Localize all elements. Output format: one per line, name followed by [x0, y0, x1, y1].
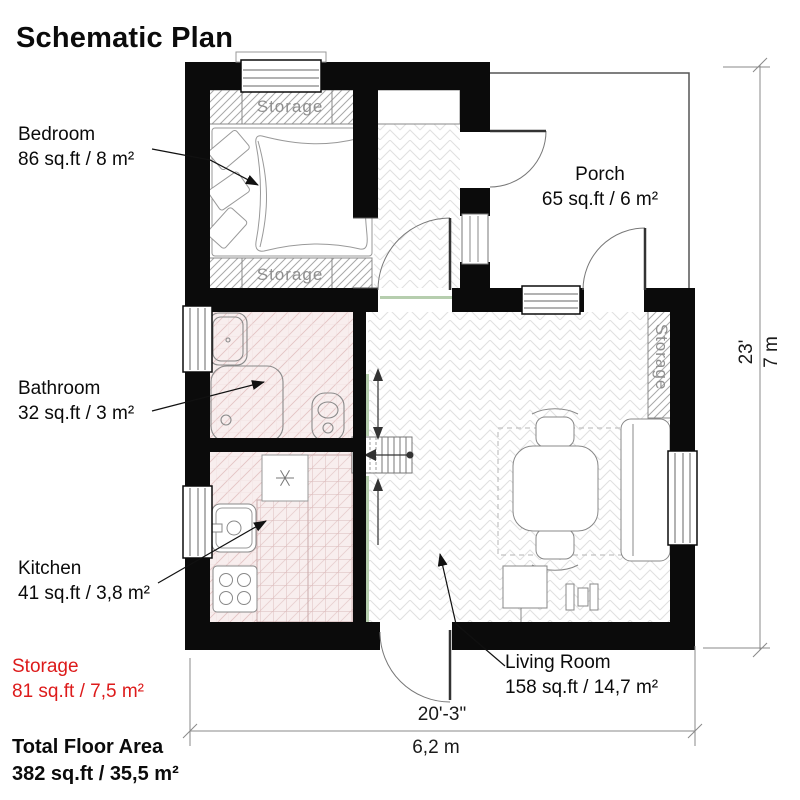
porch-name: Porch [542, 162, 658, 187]
sofa [621, 419, 670, 561]
bathroom-area: 32 sq.ft / 3 m² [18, 401, 134, 426]
living-room-name: Living Room [505, 650, 658, 675]
dining-table [513, 446, 598, 531]
kitchen-name: Kitchen [18, 556, 150, 581]
bed-blanket [256, 136, 367, 251]
entry-closet [372, 90, 460, 124]
dim-height-ft: 23' [736, 340, 758, 365]
total-value: 382 sq.ft / 35,5 m² [12, 761, 179, 788]
wall-hall-lower [353, 290, 366, 622]
bedroom-furniture [206, 128, 372, 256]
bedroom-area: 86 sq.ft / 8 m² [18, 147, 134, 172]
porch-label: Porch 65 sq.ft / 6 m² [542, 162, 658, 212]
chair [536, 417, 574, 447]
storage-label: Storage 81 sq.ft / 7,5 m² [12, 654, 144, 704]
storage-band-top-text: Storage [257, 97, 324, 117]
chair [536, 529, 574, 559]
tv-stand [503, 566, 547, 608]
wall-hall-porch [460, 90, 490, 132]
bathroom-name: Bathroom [18, 376, 134, 401]
dim-width-ft: 20'-3" [418, 704, 466, 726]
storage-area: 81 sq.ft / 7,5 m² [12, 679, 144, 704]
wall-living-top [452, 288, 522, 312]
kitchen-counter [308, 455, 353, 622]
living-porch-window [522, 286, 580, 314]
storage-name: Storage [12, 654, 144, 679]
hall-porch-window [462, 214, 488, 264]
porch-area: 65 sq.ft / 6 m² [542, 187, 658, 212]
wall-top [185, 62, 490, 90]
wall-below-bedroom [185, 288, 378, 312]
storage-band-bottom-text: Storage [257, 265, 324, 285]
media-unit [590, 584, 598, 610]
bedroom-name: Bedroom [18, 122, 134, 147]
living-room-label: Living Room 158 sq.ft / 14,7 m² [505, 650, 658, 700]
living-room-area: 158 sq.ft / 14,7 m² [505, 675, 658, 700]
kitchen-label: Kitchen 41 sq.ft / 3,8 m² [18, 556, 150, 606]
bedroom-label: Bedroom 86 sq.ft / 8 m² [18, 122, 134, 172]
media-unit [566, 584, 574, 610]
total-label: Total Floor Area [12, 734, 179, 761]
stove [213, 566, 257, 612]
wall-bedroom-hall [353, 90, 378, 218]
bathroom-label: Bathroom 32 sq.ft / 3 m² [18, 376, 134, 426]
bedroom-window [241, 60, 321, 92]
total-floor-area: Total Floor Area 382 sq.ft / 35,5 m² [12, 734, 179, 788]
page-title: Schematic Plan [16, 22, 233, 55]
storage-band-side-text: Storage [651, 324, 671, 391]
front-door-swing [490, 131, 546, 187]
kitchen-area: 41 sq.ft / 3,8 m² [18, 581, 150, 606]
dim-width-m: 6,2 m [412, 737, 460, 759]
porch-door-swing [583, 228, 645, 290]
kitchen-counter [257, 500, 308, 622]
dim-height-m: 7 m [761, 336, 783, 368]
wall-bath-kitchen [210, 438, 355, 452]
media-unit [578, 588, 588, 606]
